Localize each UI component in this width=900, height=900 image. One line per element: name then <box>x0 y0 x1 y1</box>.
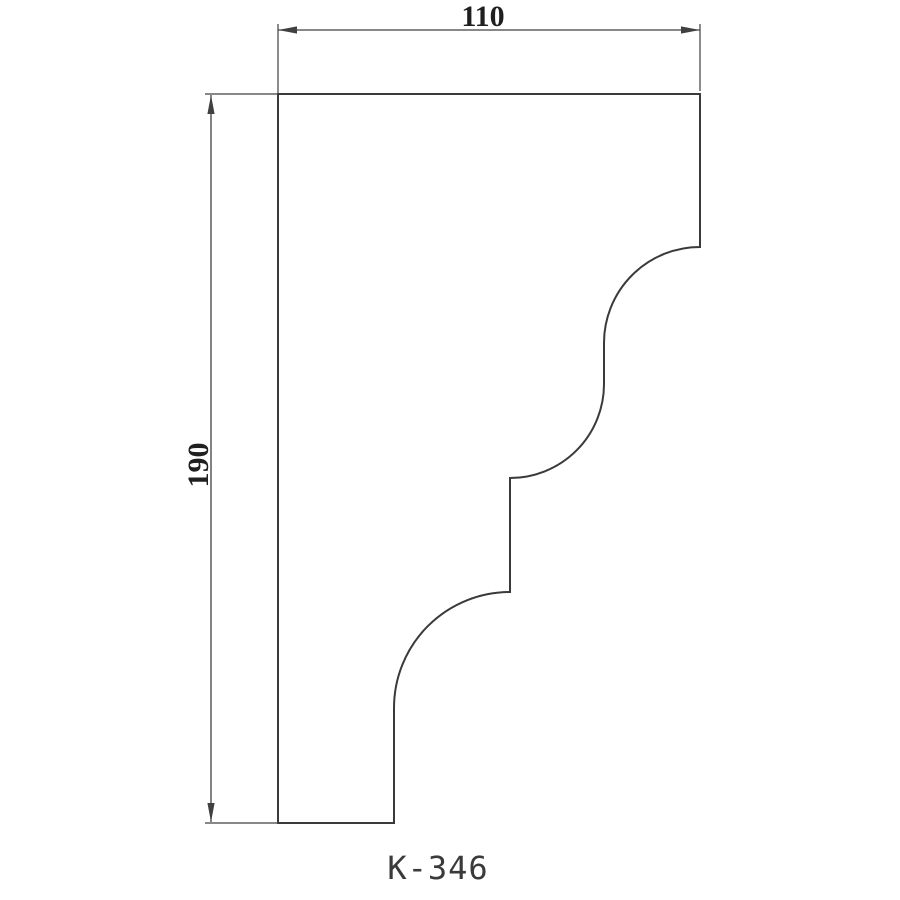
arrow-up-icon <box>207 95 214 114</box>
arrow-right-icon <box>681 26 700 33</box>
technical-drawing: 110 190 K-346 <box>0 0 900 900</box>
arrow-left-icon <box>278 26 297 33</box>
molding-profile-outline <box>278 94 700 823</box>
height-dimension: 190 <box>182 94 278 823</box>
height-dimension-label: 190 <box>182 443 215 488</box>
width-dimension: 110 <box>278 0 700 94</box>
product-code-label: K-346 <box>387 849 488 887</box>
width-dimension-label: 110 <box>461 0 504 33</box>
drawing-sheet: 110 190 K-346 <box>0 0 900 900</box>
arrow-down-icon <box>207 803 214 822</box>
